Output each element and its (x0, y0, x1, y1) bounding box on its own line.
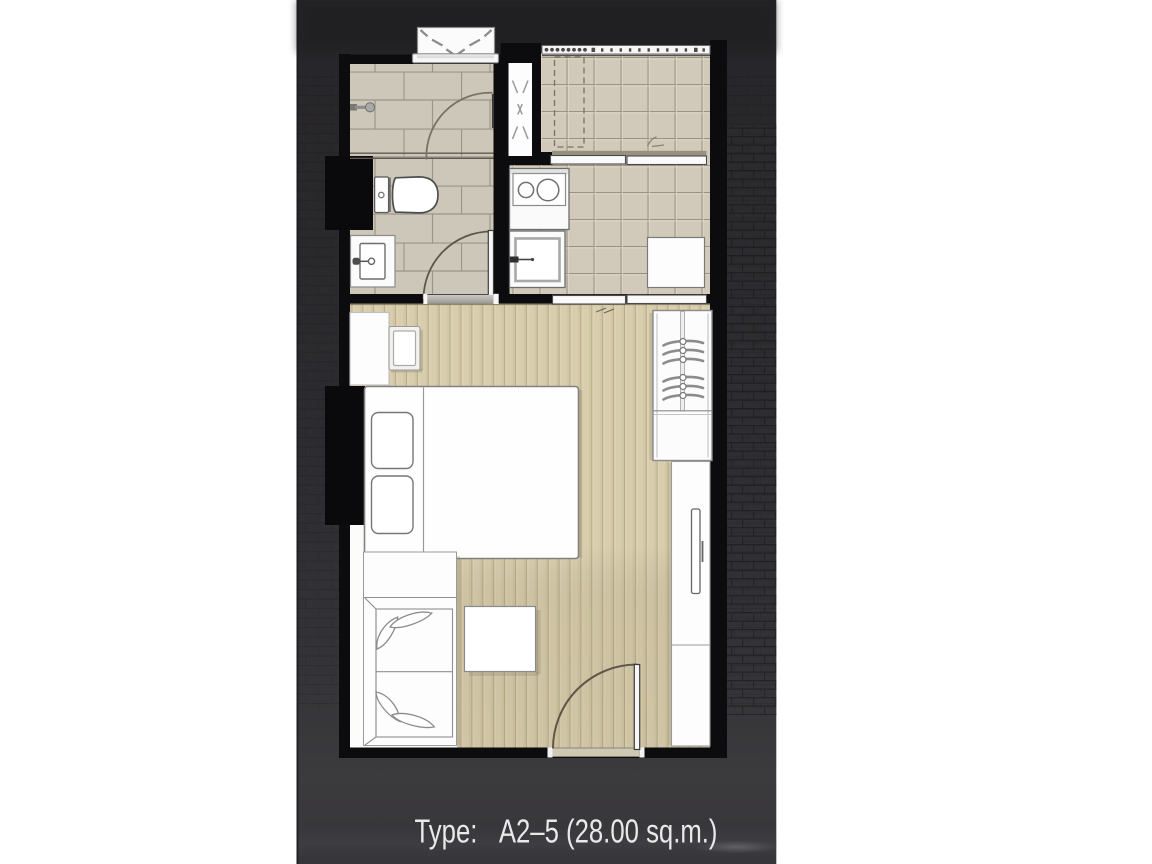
svg-text:Type: A2–5 (28.00 sq.m.): Type: A2–5 (28.00 sq.m.) (415, 814, 718, 851)
